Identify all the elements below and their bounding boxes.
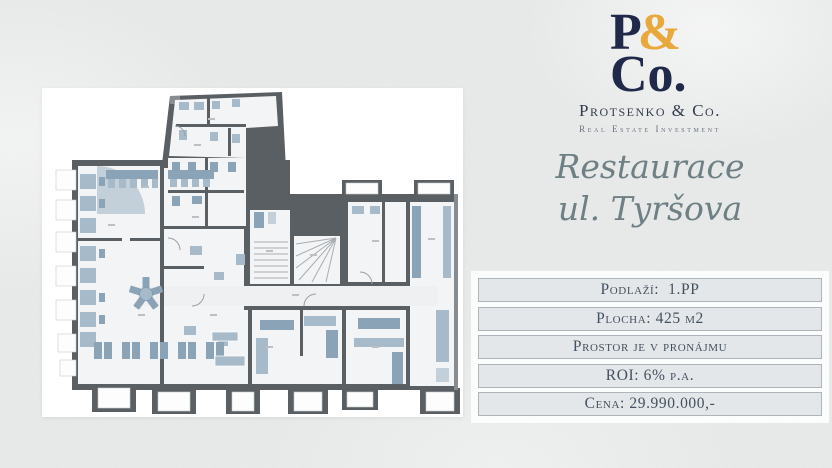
floor-plan xyxy=(42,88,463,417)
detail-row-area-label: Plocha: 425 m2 xyxy=(596,310,704,327)
info-panel: P& Co. Protsenko & Co. Real Estate Inves… xyxy=(470,0,830,468)
detail-row-lease-label: Prostor je v pronájmu xyxy=(573,338,727,355)
brand-logo: P& Co. xyxy=(610,12,750,95)
listing-title: Restaurace ul. Tyršova xyxy=(478,146,822,230)
details-table: Podlaží: 1.PP Plocha: 425 m2 Prostor je … xyxy=(478,278,822,416)
detail-row-area: Plocha: 425 m2 xyxy=(478,307,822,331)
logo-co: Co. xyxy=(610,54,750,96)
listing-title-line2: ul. Tyršova xyxy=(478,188,822,230)
detail-row-price-label: Cena: 29.990.000,- xyxy=(585,395,716,412)
floor-plan-card xyxy=(42,88,463,417)
listing-title-line1: Restaurace xyxy=(478,146,822,188)
detail-row-lease: Prostor je v pronájmu xyxy=(478,335,822,359)
detail-row-floor: Podlaží: 1.PP xyxy=(478,278,822,302)
detail-row-floor-label: Podlaží: 1.PP xyxy=(601,281,700,298)
detail-row-roi: ROI: 6% p.a. xyxy=(478,364,822,388)
company-name: Protsenko & Co. xyxy=(478,101,822,121)
detail-row-price: Cena: 29.990.000,- xyxy=(478,392,822,416)
listing-poster: P& Co. Protsenko & Co. Real Estate Inves… xyxy=(0,0,832,468)
company-tagline: Real Estate Investment xyxy=(478,124,822,134)
detail-row-roi-label: ROI: 6% p.a. xyxy=(606,367,694,384)
